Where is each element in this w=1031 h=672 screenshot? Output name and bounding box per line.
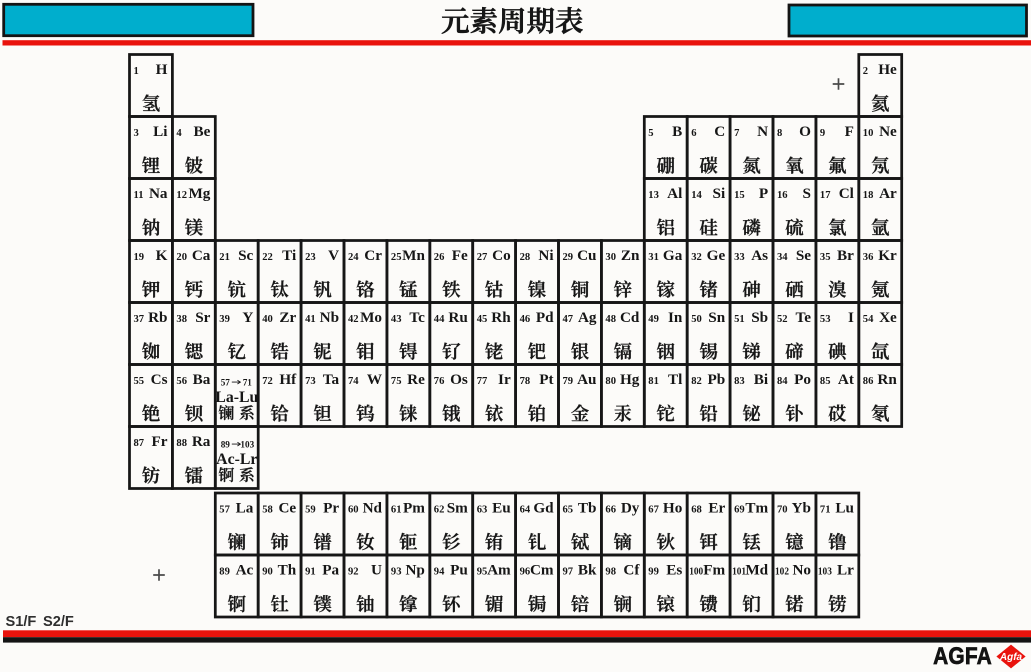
svg-text:Es: Es (666, 562, 682, 579)
svg-text:Mg: Mg (188, 185, 210, 202)
svg-text:17: 17 (820, 190, 831, 201)
svg-text:83: 83 (734, 376, 745, 387)
svg-text:K: K (156, 247, 168, 264)
svg-text:Gd: Gd (533, 500, 554, 517)
svg-text:6: 6 (691, 128, 696, 139)
svg-text:Pu: Pu (450, 562, 468, 579)
svg-text:89: 89 (221, 440, 231, 450)
svg-text:52: 52 (777, 314, 788, 325)
svg-text:31: 31 (648, 252, 659, 263)
svg-text:92: 92 (348, 566, 359, 577)
svg-text:In: In (668, 309, 683, 326)
svg-text:64: 64 (520, 504, 531, 515)
svg-text:Tl: Tl (668, 371, 682, 388)
svg-text:Te: Te (796, 309, 812, 326)
svg-text:63: 63 (477, 504, 488, 515)
svg-text:Ra: Ra (192, 433, 211, 450)
svg-text:Bi: Bi (754, 371, 768, 388)
svg-text:8: 8 (777, 128, 782, 139)
svg-text:Re: Re (407, 371, 425, 388)
svg-text:Mo: Mo (360, 309, 382, 326)
svg-text:99: 99 (648, 566, 659, 577)
svg-text:65: 65 (563, 504, 574, 515)
svg-text:71: 71 (820, 504, 831, 515)
svg-text:103: 103 (818, 566, 832, 577)
svg-text:101: 101 (732, 566, 746, 577)
svg-text:47: 47 (563, 314, 574, 325)
svg-text:Zn: Zn (621, 247, 640, 264)
svg-text:Ce: Ce (278, 500, 296, 517)
svg-text:Y: Y (242, 309, 253, 326)
svg-text:34: 34 (777, 252, 788, 263)
svg-text:57: 57 (221, 378, 231, 388)
svg-text:88: 88 (176, 438, 187, 449)
svg-text:58: 58 (262, 504, 273, 515)
svg-text:La-Lu: La-Lu (215, 389, 258, 406)
svg-text:Cf: Cf (623, 562, 640, 579)
svg-text:Ni: Ni (538, 247, 553, 264)
svg-text:Co: Co (492, 247, 511, 264)
svg-text:80: 80 (605, 376, 616, 387)
svg-text:Na: Na (149, 185, 168, 202)
svg-text:AGFA: AGFA (933, 643, 992, 670)
svg-text:36: 36 (863, 252, 874, 263)
svg-text:Ar: Ar (879, 185, 897, 202)
svg-text:15: 15 (734, 190, 745, 201)
svg-text:13: 13 (648, 190, 659, 201)
svg-text:Eu: Eu (492, 500, 511, 517)
svg-text:Am: Am (487, 562, 511, 579)
svg-text:5: 5 (648, 128, 653, 139)
svg-text:32: 32 (691, 252, 702, 263)
svg-text:72: 72 (262, 376, 273, 387)
svg-text:Sr: Sr (195, 309, 210, 326)
svg-text:Rh: Rh (491, 309, 511, 326)
svg-text:37: 37 (134, 314, 145, 325)
svg-text:42: 42 (348, 314, 359, 325)
svg-text:Dy: Dy (621, 500, 640, 517)
svg-text:Ir: Ir (498, 371, 511, 388)
svg-text:26: 26 (434, 252, 445, 263)
svg-text:Hg: Hg (620, 371, 640, 388)
svg-text:16: 16 (777, 190, 788, 201)
svg-text:N: N (757, 123, 768, 140)
svg-text:73: 73 (305, 376, 316, 387)
svg-text:40: 40 (262, 314, 273, 325)
svg-text:1: 1 (134, 66, 139, 77)
svg-text:20: 20 (176, 252, 187, 263)
svg-text:67: 67 (648, 504, 659, 515)
svg-text:81: 81 (648, 376, 659, 387)
svg-text:78: 78 (520, 376, 531, 387)
svg-text:Fm: Fm (703, 562, 725, 579)
svg-text:53: 53 (820, 314, 831, 325)
svg-text:Ne: Ne (879, 123, 897, 140)
svg-text:38: 38 (176, 314, 187, 325)
svg-text:4: 4 (176, 128, 182, 139)
svg-text:As: As (751, 247, 768, 264)
svg-text:U: U (371, 562, 382, 579)
svg-text:Au: Au (577, 371, 597, 388)
svg-text:55: 55 (134, 376, 145, 387)
svg-text:Xe: Xe (879, 309, 897, 326)
svg-text:35: 35 (820, 252, 831, 263)
svg-text:97: 97 (563, 566, 574, 577)
svg-text:Li: Li (153, 123, 167, 140)
svg-text:Fe: Fe (452, 247, 468, 264)
svg-text:89: 89 (219, 566, 230, 577)
svg-text:Pt: Pt (539, 371, 553, 388)
svg-text:S2/F: S2/F (43, 614, 74, 630)
svg-text:Cd: Cd (620, 309, 640, 326)
svg-text:Al: Al (667, 185, 682, 202)
svg-text:87: 87 (134, 438, 145, 449)
svg-text:27: 27 (477, 252, 488, 263)
svg-text:69: 69 (734, 504, 745, 515)
svg-text:F: F (845, 123, 854, 140)
svg-text:V: V (328, 247, 339, 264)
svg-text:25: 25 (391, 252, 402, 263)
svg-text:Ag: Ag (578, 309, 597, 326)
svg-text:Pd: Pd (536, 309, 554, 326)
svg-text:Po: Po (794, 371, 811, 388)
svg-text:Pb: Pb (707, 371, 725, 388)
svg-text:At: At (838, 371, 854, 388)
svg-text:I: I (848, 309, 854, 326)
svg-text:60: 60 (348, 504, 359, 515)
svg-text:Agfa: Agfa (999, 652, 1023, 663)
svg-text:H: H (156, 61, 168, 78)
svg-text:74: 74 (348, 376, 359, 387)
svg-text:Sn: Sn (708, 309, 725, 326)
svg-text:79: 79 (563, 376, 574, 387)
svg-text:100: 100 (689, 566, 703, 577)
svg-text:41: 41 (305, 314, 316, 325)
svg-text:68: 68 (691, 504, 702, 515)
svg-text:Ru: Ru (448, 309, 468, 326)
svg-text:Fr: Fr (151, 433, 167, 450)
svg-text:Cr: Cr (364, 247, 382, 264)
svg-text:Si: Si (713, 185, 726, 202)
svg-text:Rb: Rb (148, 309, 167, 326)
svg-text:11: 11 (134, 190, 144, 201)
svg-text:43: 43 (391, 314, 402, 325)
svg-text:Ga: Ga (663, 247, 683, 264)
svg-text:85: 85 (820, 376, 831, 387)
svg-text:Yb: Yb (792, 500, 811, 517)
svg-text:95: 95 (477, 566, 488, 577)
svg-text:Ac-Lr: Ac-Lr (216, 451, 257, 468)
svg-text:22: 22 (262, 252, 273, 263)
svg-text:61: 61 (391, 504, 402, 515)
svg-text:Zr: Zr (279, 309, 296, 326)
svg-text:Bk: Bk (578, 562, 597, 579)
svg-text:Br: Br (837, 247, 854, 264)
svg-text:C: C (714, 123, 725, 140)
svg-text:Cl: Cl (839, 185, 854, 202)
svg-text:Pa: Pa (322, 562, 339, 579)
svg-text:39: 39 (219, 314, 230, 325)
svg-text:Nd: Nd (363, 500, 383, 517)
svg-text:98: 98 (605, 566, 616, 577)
svg-text:Pm: Pm (403, 500, 425, 517)
svg-text:29: 29 (563, 252, 574, 263)
svg-text:Cu: Cu (577, 247, 597, 264)
svg-text:Sc: Sc (238, 247, 253, 264)
svg-text:No: No (792, 562, 811, 579)
svg-text:94: 94 (434, 566, 445, 577)
svg-text:Se: Se (796, 247, 811, 264)
svg-text:57: 57 (219, 504, 230, 515)
svg-text:Cm: Cm (530, 562, 554, 579)
svg-text:Th: Th (278, 562, 297, 579)
svg-text:93: 93 (391, 566, 402, 577)
svg-text:Lu: Lu (835, 500, 854, 517)
svg-text:Nb: Nb (320, 309, 339, 326)
svg-text:Mn: Mn (402, 247, 425, 264)
svg-text:59: 59 (305, 504, 316, 515)
svg-text:82: 82 (691, 376, 702, 387)
svg-text:56: 56 (176, 376, 187, 387)
svg-text:66: 66 (605, 504, 616, 515)
svg-text:La: La (236, 500, 254, 517)
svg-text:He: He (878, 61, 897, 78)
svg-text:Ac: Ac (236, 562, 254, 579)
svg-text:70: 70 (777, 504, 788, 515)
svg-text:23: 23 (305, 252, 316, 263)
svg-text:Sb: Sb (751, 309, 768, 326)
svg-text:Md: Md (745, 562, 768, 579)
svg-text:Ca: Ca (192, 247, 211, 264)
svg-text:Cs: Cs (151, 371, 168, 388)
svg-text:Np: Np (405, 562, 424, 579)
svg-text:14: 14 (691, 190, 702, 201)
svg-text:44: 44 (434, 314, 445, 325)
svg-text:9: 9 (820, 128, 825, 139)
svg-text:48: 48 (605, 314, 616, 325)
svg-text:Tb: Tb (578, 500, 597, 517)
svg-text:19: 19 (134, 252, 145, 263)
svg-text:24: 24 (348, 252, 359, 263)
svg-text:18: 18 (863, 190, 874, 201)
svg-text:3: 3 (134, 128, 139, 139)
svg-text:Tc: Tc (409, 309, 425, 326)
svg-text:75: 75 (391, 376, 402, 387)
svg-text:28: 28 (520, 252, 531, 263)
svg-text:21: 21 (219, 252, 230, 263)
svg-text:51: 51 (734, 314, 745, 325)
svg-text:33: 33 (734, 252, 745, 263)
svg-text:49: 49 (648, 314, 659, 325)
svg-text:10: 10 (863, 128, 874, 139)
svg-text:96: 96 (520, 566, 531, 577)
svg-text:30: 30 (605, 252, 616, 263)
svg-text:Ti: Ti (282, 247, 296, 264)
svg-text:84: 84 (777, 376, 788, 387)
svg-text:Pr: Pr (323, 500, 339, 517)
svg-text:O: O (799, 123, 811, 140)
svg-text:Ta: Ta (323, 371, 340, 388)
svg-text:54: 54 (863, 314, 874, 325)
svg-text:77: 77 (477, 376, 488, 387)
svg-text:46: 46 (520, 314, 531, 325)
svg-text:Ba: Ba (193, 371, 211, 388)
svg-text:P: P (759, 185, 768, 202)
svg-text:Be: Be (194, 123, 211, 140)
svg-text:Os: Os (450, 371, 468, 388)
svg-text:Ho: Ho (663, 500, 683, 517)
svg-text:Er: Er (708, 500, 725, 517)
svg-text:S: S (803, 185, 811, 202)
svg-text:90: 90 (262, 566, 273, 577)
svg-text:50: 50 (691, 314, 702, 325)
svg-text:2: 2 (863, 66, 868, 77)
svg-text:Rn: Rn (877, 371, 897, 388)
svg-text:71: 71 (243, 378, 253, 388)
svg-text:7: 7 (734, 128, 740, 139)
svg-text:86: 86 (863, 376, 874, 387)
svg-text:Lr: Lr (837, 562, 854, 579)
svg-text:12: 12 (176, 190, 187, 201)
svg-text:91: 91 (305, 566, 316, 577)
svg-text:W: W (367, 371, 382, 388)
svg-text:B: B (672, 123, 682, 140)
svg-text:76: 76 (434, 376, 445, 387)
svg-text:Tm: Tm (745, 500, 768, 517)
svg-text:S1/F: S1/F (6, 614, 37, 630)
svg-text:45: 45 (477, 314, 488, 325)
svg-text:Ge: Ge (707, 247, 726, 264)
svg-text:62: 62 (434, 504, 445, 515)
svg-text:102: 102 (775, 566, 789, 577)
svg-text:Kr: Kr (878, 247, 897, 264)
svg-text:Sm: Sm (447, 500, 468, 517)
svg-text:103: 103 (240, 440, 254, 450)
svg-text:Hf: Hf (279, 371, 297, 388)
